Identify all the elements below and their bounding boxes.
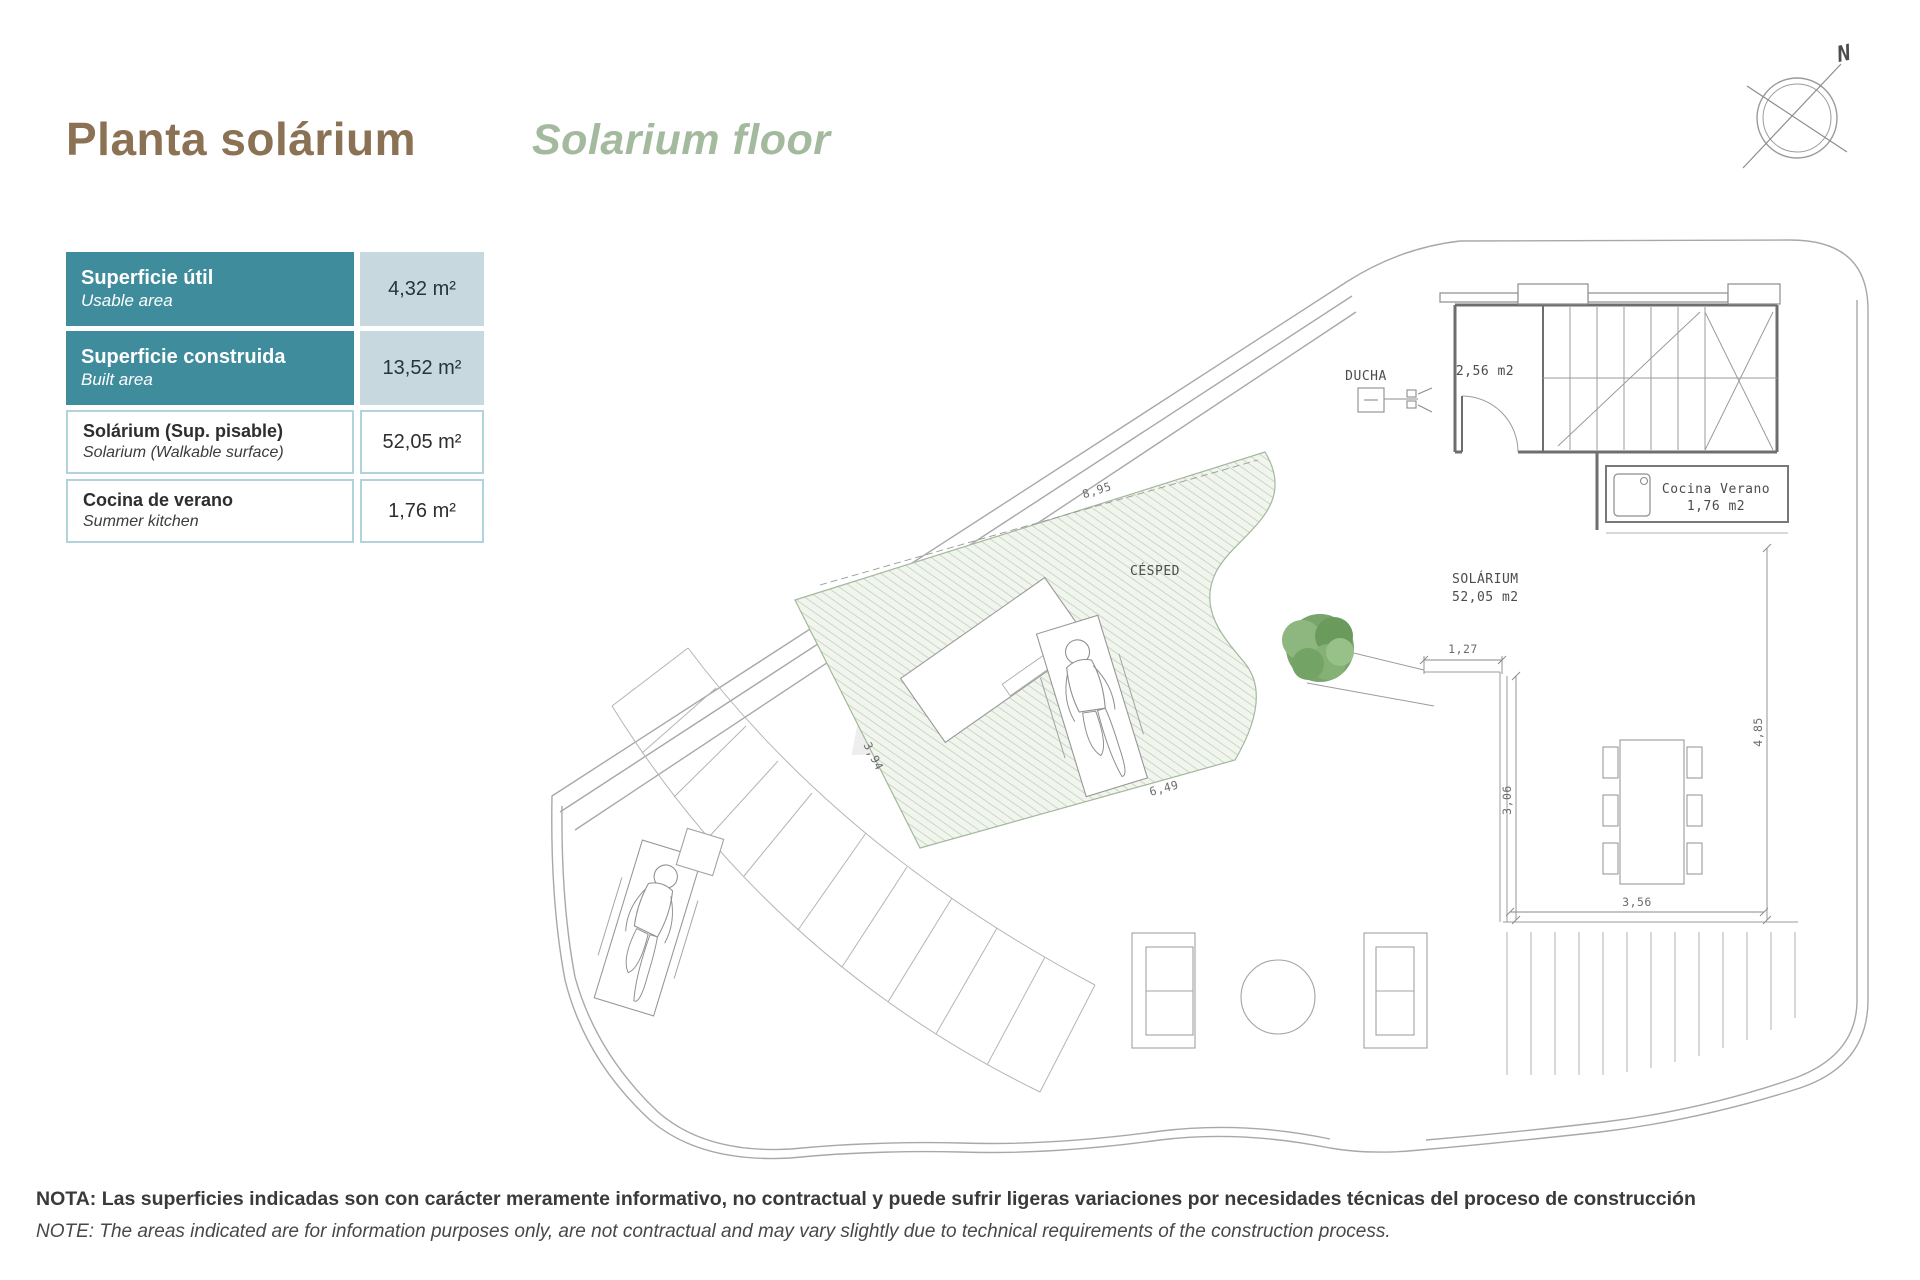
dining-table (1603, 740, 1702, 884)
chair (1687, 795, 1702, 826)
dim-grass-top: 8,95 (1081, 479, 1113, 501)
stairwell: 2,56 m2 (1440, 284, 1780, 452)
tree (1282, 614, 1354, 682)
dim-deck-height: 3,06 (1500, 785, 1514, 815)
chair (1603, 843, 1618, 874)
chair (1687, 843, 1702, 874)
round-table (1241, 960, 1315, 1034)
solarium-label-line1: SOLÁRIUM (1452, 571, 1519, 587)
roof-railing (1440, 284, 1780, 304)
bottom-loungers (1132, 933, 1427, 1048)
kitchen-label-line1: Cocina Verano (1662, 482, 1770, 497)
stair-room-area-label: 2,56 m2 (1456, 364, 1514, 379)
dim-deck-width: 1,27 (1448, 642, 1478, 656)
compass: N (1743, 41, 1854, 168)
grass-label: CÉSPED (1130, 563, 1180, 579)
floor-plan: R (0, 0, 1920, 1280)
door-arc (1462, 396, 1518, 452)
solarium-label-line2: 52,05 m2 (1452, 590, 1519, 605)
note-es: NOTA: Las superficies indicadas son con … (36, 1188, 1696, 1211)
chair (1603, 795, 1618, 826)
deck-edges (1300, 640, 1798, 922)
shower-label: DUCHA (1345, 369, 1387, 384)
shower-fixture (1358, 388, 1432, 412)
table-top (1620, 740, 1684, 884)
north-label: N (1834, 41, 1854, 69)
pergola-slats (1507, 932, 1795, 1075)
chair (1603, 747, 1618, 778)
kitchen-label-line2: 1,76 m2 (1687, 499, 1745, 514)
stair-treads (1543, 307, 1777, 450)
solarium-plan-page: Planta solárium Solarium floor Superfici… (0, 0, 1920, 1280)
note-en: NOTE: The areas indicated are for inform… (36, 1221, 1391, 1243)
dim-right-height: 4,85 (1751, 717, 1765, 747)
summer-kitchen: Cocina Verano 1,76 m2 (1597, 452, 1788, 533)
chair (1687, 747, 1702, 778)
dim-deck-bottom: 3,56 (1622, 895, 1652, 909)
